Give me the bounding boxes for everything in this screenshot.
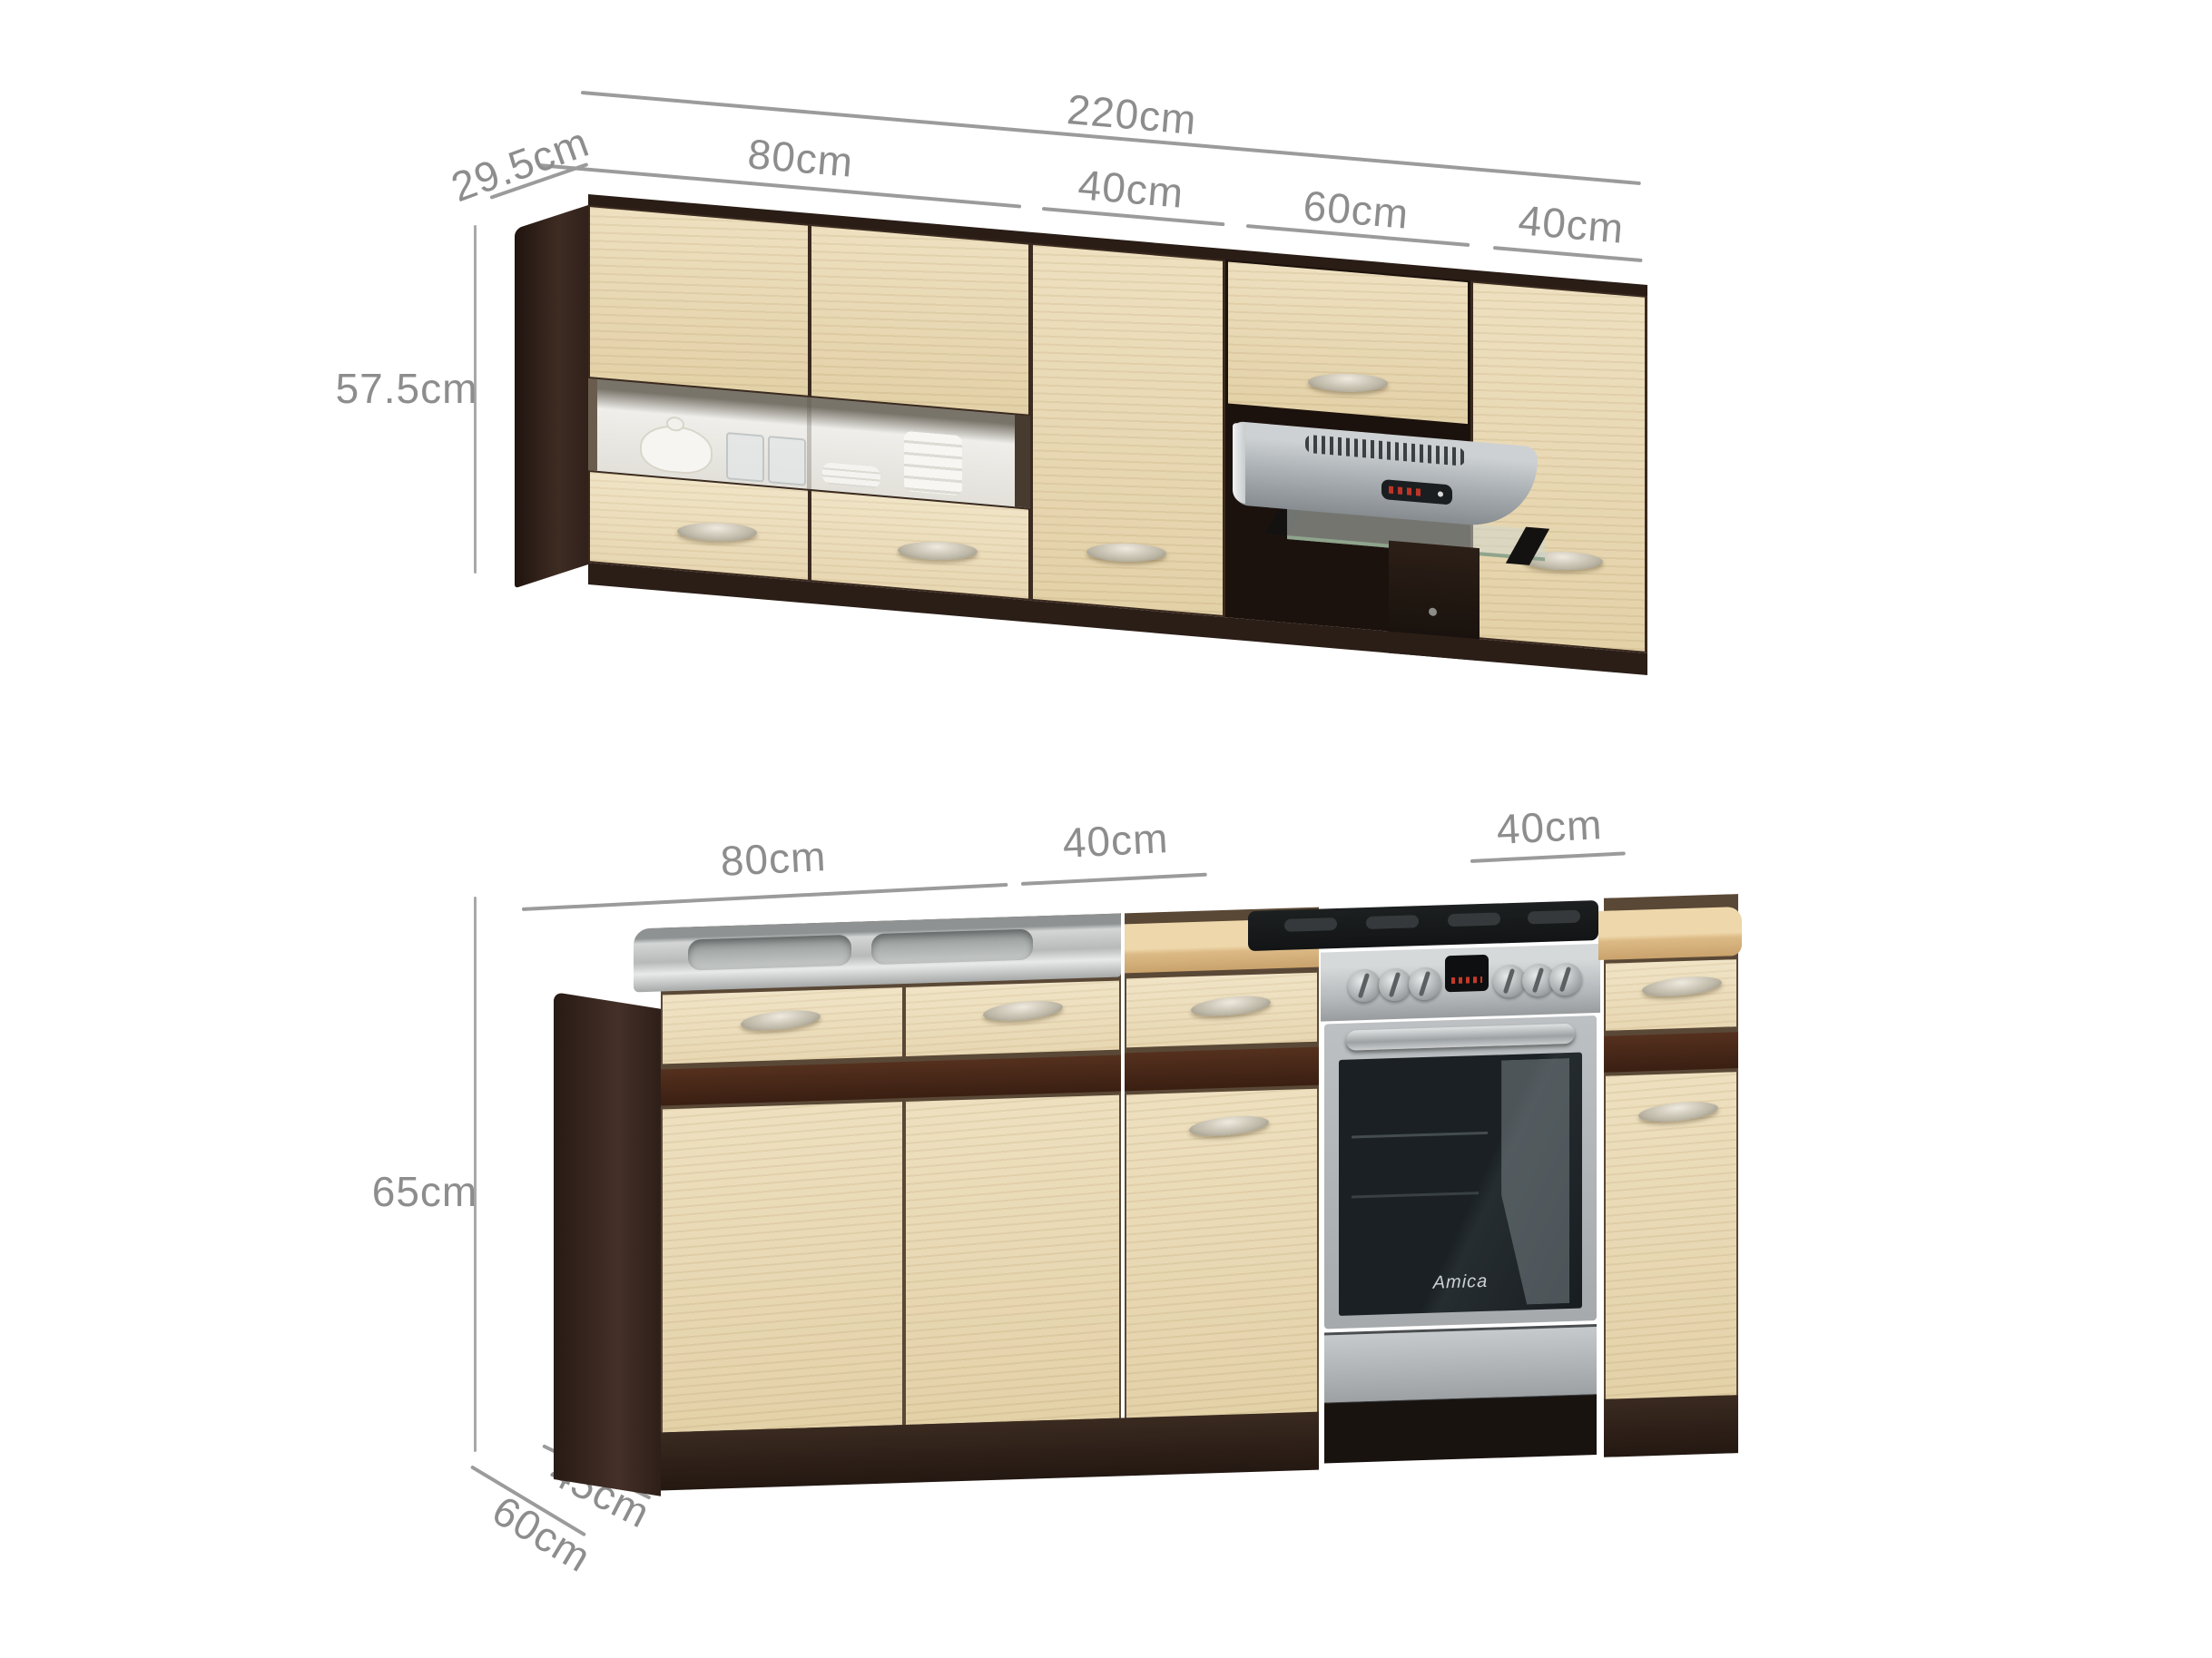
dim-label-upper-80: 80cm <box>746 129 856 187</box>
dim-line-lower-40a <box>1021 873 1207 886</box>
timer-digits <box>1451 976 1482 984</box>
hood-control-lights <box>1389 486 1421 496</box>
wall-flap-door-right <box>811 491 1028 598</box>
oven-glass: Amica <box>1339 1053 1582 1316</box>
burner-grate <box>1366 915 1419 929</box>
drinking-glass <box>726 432 764 483</box>
drawer-handle <box>982 998 1063 1025</box>
dim-label-upper-40a: 40cm <box>1077 160 1186 218</box>
flap-handle <box>676 522 757 541</box>
oven-handle <box>1346 1024 1575 1051</box>
screw <box>1429 607 1437 616</box>
dim-label-upper-40b: 40cm <box>1517 195 1627 253</box>
rack-reflection <box>1352 1192 1479 1198</box>
accent-stripe <box>1604 1032 1738 1073</box>
dim-line-lower-40b <box>1470 851 1626 863</box>
base-unit-40cm-left <box>1125 907 1319 1426</box>
base-cabinet-run: Amica <box>558 894 1738 1510</box>
rack-reflection <box>1352 1132 1488 1139</box>
burner-grate <box>1284 917 1337 932</box>
burner-grate <box>1528 910 1580 925</box>
hood-vent-grille <box>1305 435 1465 466</box>
wall-door-80-right <box>811 226 1028 414</box>
dim-label-lower-80: 80cm <box>719 831 827 886</box>
drawer-handle <box>1190 993 1271 1019</box>
hood-end-cap <box>1233 423 1245 504</box>
shelf-left-jamb <box>588 378 597 471</box>
wall-unit-40cm-left <box>1030 243 1225 617</box>
bowl-stack <box>904 431 962 495</box>
stainless-sink-top <box>634 914 1121 993</box>
dim-label-upper-60: 60cm <box>1302 181 1411 239</box>
drawer-front <box>663 987 902 1064</box>
plinth-right <box>1604 1395 1738 1457</box>
accent-stripe <box>1125 1047 1319 1092</box>
cooker-base <box>1324 1395 1597 1463</box>
base-door <box>663 1102 902 1432</box>
base-unit-40cm-right <box>1604 894 1738 1403</box>
worktop <box>1598 907 1742 960</box>
dim-label-upper-depth: 29.5cm <box>445 117 595 211</box>
kitchen-set-dimension-diagram: 220cm 29.5cm 80cm 40cm 60cm 40cm 57.5cm … <box>0 0 2212 1658</box>
door-handle <box>1637 1099 1718 1125</box>
drawer-front <box>906 981 1119 1056</box>
base-door <box>1126 1089 1317 1422</box>
drawer-front <box>1126 973 1317 1048</box>
drawer-handle <box>740 1007 821 1034</box>
shelf-divider-shadow <box>807 397 811 489</box>
door-handle <box>1188 1113 1269 1139</box>
base-door <box>906 1095 1119 1425</box>
wall-door-80-left <box>590 207 808 396</box>
dim-label-upper-height: 57.5cm <box>336 364 478 413</box>
sink-drainer <box>688 935 851 971</box>
dim-line-lower-80 <box>522 883 1008 911</box>
drawer-front <box>1606 959 1736 1031</box>
dim-label-lower-40a: 40cm <box>1061 813 1169 868</box>
hood-control-panel <box>1381 479 1452 505</box>
dim-label-lower-40b: 40cm <box>1495 800 1603 854</box>
sink-unit-80cm <box>661 914 1121 1437</box>
hood-control-button <box>1438 491 1443 497</box>
wall-flap-door-left <box>590 472 808 580</box>
flap-handle <box>897 541 978 560</box>
wall-door-60 <box>1228 261 1468 424</box>
freestanding-cooker: Amica <box>1321 898 1600 1467</box>
cooker-timer-display <box>1445 955 1489 993</box>
oven-door: Amica <box>1324 1015 1597 1329</box>
wall-cabinet-run <box>588 205 1647 675</box>
sink-bowl <box>871 929 1033 966</box>
cooker-storage-drawer <box>1324 1324 1597 1405</box>
wall-unit-80cm <box>588 205 1030 601</box>
drinking-glass <box>768 436 806 486</box>
burner-grate <box>1448 912 1500 927</box>
drawer-handle <box>1641 974 1722 1000</box>
shelf-right-jamb <box>1015 415 1030 507</box>
dim-label-lower-height: 65cm <box>372 1167 477 1216</box>
wall-cabinet-side-panel <box>515 205 588 588</box>
dish-pile <box>822 462 880 488</box>
base-door <box>1606 1072 1736 1403</box>
